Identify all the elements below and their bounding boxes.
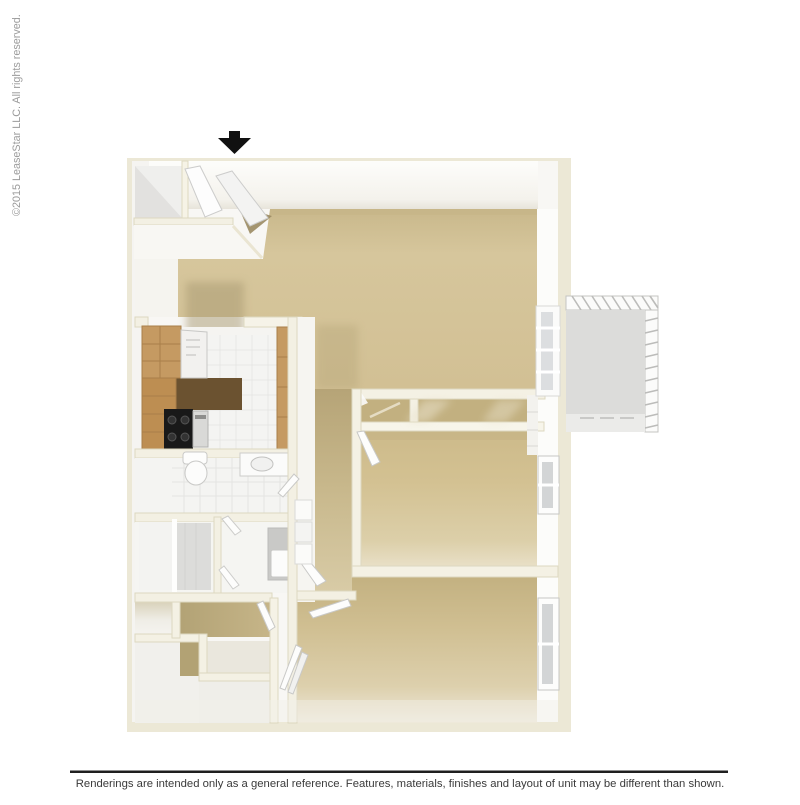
svg-text:©2015 LeaseStar LLC. All right: ©2015 LeaseStar LLC. All rights reserved… [11,14,23,216]
svg-text:Renderings are intended only a: Renderings are intended only as a genera… [76,778,725,790]
